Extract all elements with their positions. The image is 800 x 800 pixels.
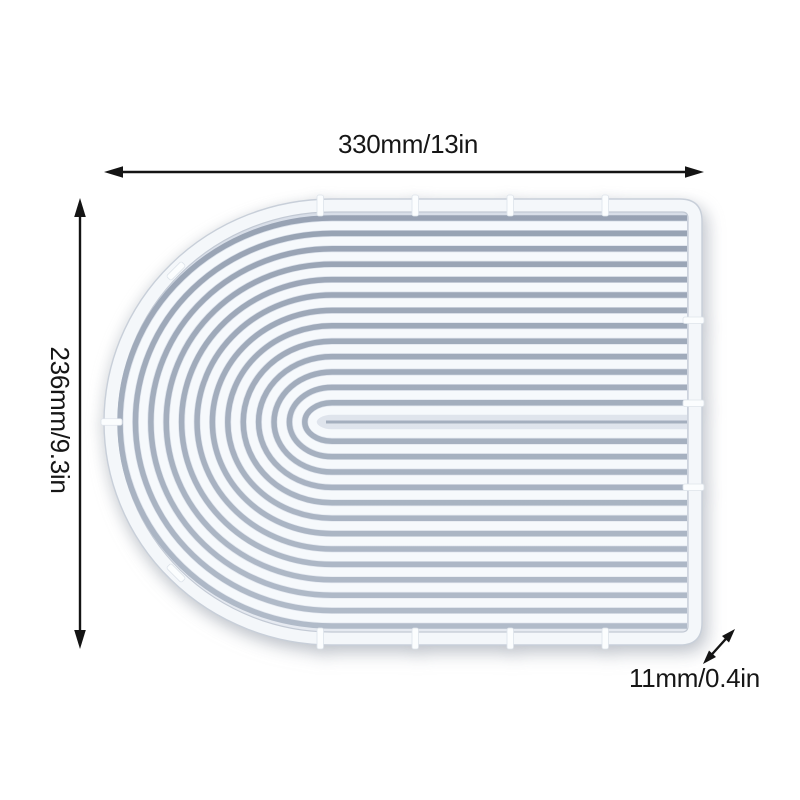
tab-bottom-4 xyxy=(602,628,609,649)
concentric-u-channels xyxy=(120,218,687,626)
height-dimension-label: 236mm/9.3in xyxy=(46,270,74,570)
width-arrow xyxy=(104,166,704,178)
tab-left-mid xyxy=(101,419,122,426)
silicone-mold-photo xyxy=(101,195,704,649)
arrowhead-left-icon xyxy=(104,166,123,178)
tab-bottom-2 xyxy=(412,628,419,649)
tab-top-4 xyxy=(602,195,609,216)
thickness-arrow xyxy=(703,629,735,664)
tab-right-3 xyxy=(683,484,704,491)
arrowhead-up-icon xyxy=(74,198,86,217)
product-dimension-diagram: 330mm/13in 236mm/9.3in 11mm/0.4in xyxy=(0,0,800,800)
tab-top-3 xyxy=(507,195,514,216)
width-dimension-label: 330mm/13in xyxy=(258,130,558,158)
height-arrow xyxy=(74,198,86,649)
tab-top-1 xyxy=(317,195,324,216)
tab-right-1 xyxy=(683,317,704,324)
arrowhead-right-icon xyxy=(685,166,704,178)
tab-top-2 xyxy=(412,195,419,216)
thickness-dimension-label: 11mm/0.4in xyxy=(622,664,767,692)
tab-bottom-3 xyxy=(507,628,514,649)
tab-bottom-1 xyxy=(317,628,324,649)
arrowhead-down-icon xyxy=(74,630,86,649)
tab-right-2 xyxy=(683,400,704,407)
